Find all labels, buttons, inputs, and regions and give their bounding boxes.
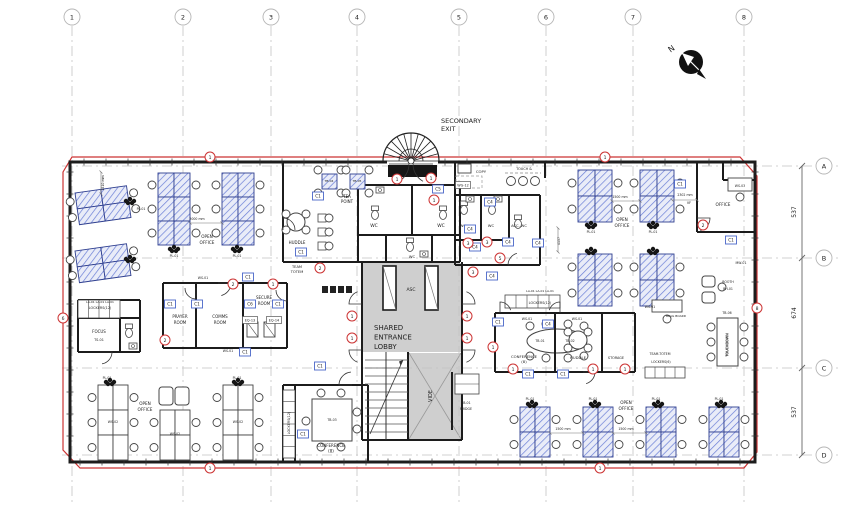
chair [526,322,534,330]
chair [148,229,156,237]
chair [542,354,550,362]
stool [507,177,516,186]
label: PL-01 [589,397,598,401]
revision-marker-number: 1 [512,367,515,373]
desk [578,196,595,222]
chair [130,419,138,427]
chair [192,205,200,213]
label: COPY [476,169,487,174]
label: 1500 mm [612,195,627,199]
chair [678,441,686,449]
label: FB-01 [461,401,470,405]
revision-marker-number: 1 [396,177,399,183]
label: TB-06 [721,311,731,315]
desk [578,280,595,306]
desk [598,407,613,432]
label: LA-01 LA-01 LA-01 [86,300,114,304]
label: WC [370,223,378,229]
grid-bubble-label: C [822,364,827,372]
label: ASC [406,287,415,293]
basin [420,251,428,257]
chair [636,416,644,424]
type-tag: C4 [535,241,541,246]
desk [657,254,674,280]
revision-marker-number: 5 [499,256,502,262]
chair [678,416,686,424]
chair [212,181,220,189]
label: 4157 [557,237,561,245]
type-tag: C1 [317,364,323,369]
spiral-center [408,158,414,164]
desk [709,432,724,457]
desk [113,435,128,460]
chair [88,394,96,402]
toilet [440,211,447,220]
desk [238,197,254,221]
chair [568,289,576,297]
chair [325,242,333,250]
planter-leaf [591,251,595,255]
totem-block [330,286,336,293]
revision-marker-number: 2 [164,338,167,344]
type-tag: C4 [472,245,478,250]
label: COMMSROOM [212,314,228,325]
desk [160,435,175,460]
desk [595,280,612,306]
revision-marker-number: 1 [209,155,212,161]
toilet [407,243,414,252]
chair [740,338,748,346]
revision-marker-number: 3 [467,241,470,247]
label: PRAYERROOM [172,314,187,325]
desk [238,435,253,460]
desk [158,197,174,221]
chair [736,193,744,201]
planter-leaf [237,249,241,253]
type-tag: C1 [300,432,306,437]
toilet-cistern [440,206,447,211]
desk [174,173,190,197]
label: WS-01 [645,305,655,309]
chair [302,417,310,425]
chair [212,229,220,237]
revision-marker-number: 1 [272,282,275,288]
chair [552,416,560,424]
booth-seat [702,276,715,287]
type-tag: C5 [435,187,441,192]
planter-leaf [654,404,658,408]
grid-bubble-label: 6 [544,13,548,21]
chair [256,229,264,237]
chair [614,263,622,271]
planter-leaf [128,197,132,201]
chair [88,419,96,427]
desk [646,432,661,457]
label: TB-01 [534,339,544,343]
planter-leaf [595,404,599,408]
chair [325,214,333,222]
desk [724,432,739,457]
chair [353,425,361,433]
chair [699,441,707,449]
label: STORAGE [608,356,624,360]
label: HUDDLE [570,355,587,360]
grid-bubble-label: 4 [355,13,359,21]
planter-leaf [717,404,721,408]
desk [238,173,254,197]
label: PL-01 [170,254,179,258]
grid-bubble-label: 2 [181,13,185,21]
planter-leaf [651,247,655,251]
label: VF [687,201,691,205]
label: FOCUS [92,329,106,334]
planter-leaf [130,201,134,205]
desk [77,263,105,282]
chair [255,394,263,402]
dimension-text: 537 [791,206,798,218]
label: OPENOFFICE [619,400,634,411]
type-tag: C1 [728,238,734,243]
dimension-text: 537 [791,406,798,418]
label: WC [409,254,416,259]
planter-leaf [653,225,657,229]
booth-seat [702,292,715,303]
desk [578,254,595,280]
planter-leaf [587,251,591,255]
label: FRIDGE [460,407,472,411]
basin [129,343,137,349]
grid-bubble-label: 3 [269,13,273,21]
planter-leaf [110,382,114,386]
chair [573,416,581,424]
label: WS-01 [223,349,233,353]
planter-leaf [126,201,130,205]
item-tag: EQ-14 [269,318,279,322]
chair [614,179,622,187]
planter-leaf [106,382,110,386]
basin [376,187,384,193]
revision-marker-number: 3 [486,240,489,246]
desk [113,385,128,410]
label: WC [437,223,445,229]
revision-marker-number: 1 [599,466,602,472]
toilet [126,329,133,338]
planter-leaf [651,221,655,225]
label: TEAM-TOTEM [649,352,671,356]
desk [595,254,612,280]
revision-marker-number: 1 [351,314,354,320]
dimension-text: 674 [791,307,798,319]
desk [174,197,190,221]
chair [676,205,684,213]
desk [657,196,674,222]
chair [255,444,263,452]
label: 2000 mm [189,217,204,221]
floor-plan-drawing: SECONDARYEXITTEAPOINTHUDDLEWCWCWCWCWCACC… [0,0,850,524]
grid-bubble-label: 5 [457,13,461,21]
desk [238,385,253,410]
planter-leaf [238,382,242,386]
chair [130,444,138,452]
chair [707,323,715,331]
chair [707,353,715,361]
item-tag: EQ-13 [245,318,255,322]
desk [222,221,238,245]
desk-cluster [148,173,200,245]
totem-block [322,286,328,293]
label: PL-01 [649,230,658,234]
chair [337,389,345,397]
planter-leaf [649,251,653,255]
chair [256,181,264,189]
label: PL-01 [526,397,535,401]
label: PL-01 [233,376,242,380]
toilet [489,206,496,215]
type-tag: C1 [677,182,683,187]
chair [192,444,200,452]
label: LOCKERS(6) [651,360,670,364]
chair [564,344,572,352]
chair [510,416,518,424]
chair [192,419,200,427]
grid-bubble-label: B [822,254,826,262]
chair [342,166,350,174]
type-tag: C4 [545,322,551,327]
desk [640,170,657,196]
label: PL-01 [652,397,661,401]
stool [531,177,540,186]
planter-leaf [174,249,178,253]
chair [148,205,156,213]
planter-leaf [172,245,176,249]
revision-marker-number: 6 [62,316,65,322]
chair [630,179,638,187]
desk [661,407,676,432]
planter-leaf [649,225,653,229]
chair [213,419,221,427]
totem-block [346,286,352,293]
chair [568,263,576,271]
desk [640,254,657,280]
label: WS-01 [522,317,532,321]
label: WS-03 [735,184,745,188]
planter-leaf [126,259,130,263]
grid-bubble-label: D [821,451,826,459]
planter-leaf [235,245,239,249]
toilet-cistern [372,206,379,211]
revision-marker-number: 1 [604,155,607,161]
revision-marker-number: 2 [232,282,235,288]
toilet [372,211,379,220]
grid-bubble-label: A [822,162,827,170]
desk [583,407,598,432]
planter-leaf [233,249,237,253]
chair [150,444,158,452]
desk [595,170,612,196]
totem-block [338,286,344,293]
type-tag: C1 [315,194,321,199]
desk [709,407,724,432]
revision-marker-number: 1 [433,198,436,204]
desk [661,432,676,457]
label: WS-01 [198,276,208,280]
label: TEAMTOTEM [290,265,304,274]
revision-marker-number: 8 [756,306,759,312]
label: WC [488,223,495,228]
desk [595,196,612,222]
revision-marker-number: 1 [624,367,627,373]
desk [598,432,613,457]
revision-marker-number: 1 [430,176,433,182]
revision-marker-number: 1 [351,336,354,342]
chair [255,419,263,427]
chair [212,205,220,213]
label: TOUCH & [515,167,532,171]
label: OPENOFFICE [138,401,153,412]
label: OFFICE [716,202,731,207]
chair [564,320,572,328]
chair [552,441,560,449]
label: PL-01 [587,230,596,234]
label: WS-02 [108,420,118,424]
planter-leaf [589,247,593,251]
label: LOCKERS(12) [287,411,291,434]
desk [222,173,238,197]
label: 1500 mm [555,427,570,431]
label: PL-01 [103,376,112,380]
chair [302,210,310,218]
item-tag: WG-12 [457,183,469,187]
type-tag: C1 [275,302,281,307]
chair [568,205,576,213]
toilet-cistern [407,238,414,243]
basin [466,196,474,202]
type-tag: C1 [194,302,200,307]
label: BH-01 [723,287,733,291]
chair [256,205,264,213]
label: TOUCHDOWN [726,333,730,358]
revision-marker-number: 1 [209,466,212,472]
type-tag: C1 [245,275,251,280]
label: TS-01 [93,338,104,342]
chair [676,263,684,271]
chair [213,444,221,452]
chair [88,444,96,452]
desk [652,300,682,312]
chair [699,416,707,424]
chair [584,328,592,336]
chair [740,353,748,361]
chair [325,228,333,236]
grid-bubble-label: 8 [742,13,746,21]
chair [130,394,138,402]
label: LA-01 LA-01 LA-01 [526,289,554,293]
planter-leaf [528,404,532,408]
planter-leaf [591,404,595,408]
type-tag: C1 [298,250,304,255]
chair [676,289,684,297]
toilet [461,206,468,215]
desk [520,432,535,457]
desk [222,197,238,221]
chair [365,189,373,197]
toilet-cistern [515,215,522,220]
toilet-cistern [126,324,133,329]
revision-marker-number: 1 [466,314,469,320]
label: SECUREROOM [256,295,273,306]
booth-seat [175,387,189,405]
chair [148,181,156,189]
label: PL-01 [715,397,724,401]
revision-marker-number: 1 [492,345,495,351]
type-tag: C6 [247,302,253,307]
chair [302,226,310,234]
planter-leaf [234,382,238,386]
desk [646,407,661,432]
chair [615,416,623,424]
label: 1500 mm [618,427,633,431]
desk [77,205,105,224]
label: TB-03 [326,418,336,422]
chair [584,344,592,352]
desk [223,435,238,460]
chair [282,210,290,218]
label: TB-04 [324,179,334,183]
chair [192,181,200,189]
label: WS-02 [233,420,243,424]
label: TB-02 [564,339,574,343]
chair [741,416,749,424]
planter-leaf [128,255,132,259]
desk [98,385,113,410]
stool [519,177,528,186]
chair [150,419,158,427]
label: PL-01 [233,254,242,258]
desk [174,221,190,245]
chair [614,205,622,213]
grid-bubble-label: 1 [70,13,74,21]
label: PL-01 [137,207,146,211]
planter-leaf [591,225,595,229]
label: BOOTH [722,280,734,284]
label: MW-01 [736,261,747,265]
revision-marker-number: 3 [472,270,475,276]
desk [640,196,657,222]
revision-marker-number: 2 [702,223,705,229]
desk [578,170,595,196]
desk [223,385,238,410]
floor-plan-page: SECONDARYEXITTEAPOINTHUDDLEWCWCWCWCWCACC… [0,0,850,524]
label: HUDDLE [289,240,306,245]
label: LOCKERS(12) [89,306,112,310]
chair [707,338,715,346]
desk [583,432,598,457]
type-tag: C1 [525,372,531,377]
revision-marker-number: 1 [592,367,595,373]
type-tag: C4 [489,274,495,279]
chair [568,179,576,187]
planter-leaf [653,251,657,255]
label: 2302 mm [677,193,692,197]
planter-leaf [130,259,134,263]
planter-leaf [589,221,593,225]
chair [314,166,322,174]
desk [158,173,174,197]
chair [564,328,572,336]
chair [365,166,373,174]
type-tag: C4 [467,227,473,232]
label: TB-05 [352,179,362,183]
